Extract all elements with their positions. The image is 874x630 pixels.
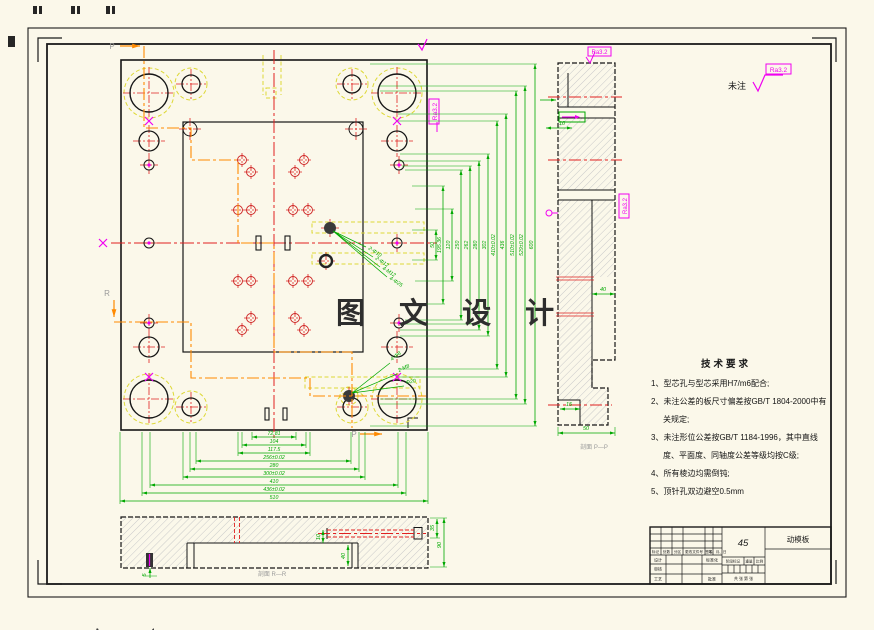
dim-label: 510 <box>270 495 279 501</box>
rev-header: 分区 <box>674 549 682 554</box>
section-letters: P P R <box>104 42 357 439</box>
dim-label: 436±0.02 <box>263 487 285 493</box>
dim-label: 72.81 <box>268 431 281 437</box>
drawing-sheet: A 4 <box>0 0 874 630</box>
roughness-symbol-icon <box>753 75 783 91</box>
dim-label: 436 <box>500 241 506 250</box>
dim-label: 104 <box>270 439 279 445</box>
dim-label: 302 <box>482 241 488 250</box>
hole-callouts-corner: 4-Φ8 2-M8 Φ20 <box>352 350 416 393</box>
title-block: 45 动模板 标记 处数 分区 更改文件号 签名 年、月、日 设计 标准化 审核… <box>650 527 831 584</box>
dim-label: 10 <box>559 121 566 127</box>
dim-label: 256±0.02 <box>262 455 285 461</box>
fold-letter-a: A <box>92 626 103 630</box>
dim-label: 15 <box>566 402 573 408</box>
ejector-pin-holes <box>234 156 313 335</box>
stage-label: 阶段标记 <box>726 559 741 564</box>
dim-label: 10 <box>316 533 322 540</box>
dim-label: 50 <box>430 242 436 248</box>
dim-label: 5 <box>142 573 148 577</box>
dim-label: 50 <box>583 426 590 432</box>
roughness-value: Ra3.2 <box>623 197 629 214</box>
rev-header: 年、月、日 <box>709 549 727 554</box>
weight-label: 重量 <box>745 559 753 564</box>
rev-header: 处数 <box>663 549 671 554</box>
watermark-text: 图 文 设 计 <box>336 290 567 332</box>
signature-labels: 设计 标准化 审核 工艺 批准 阶段标记 重量 比例 共 张 第 张 <box>654 557 763 582</box>
section-view-pp: Ra3.2 Ra3.2 10 40 15 50 剖面 P—P <box>540 47 629 451</box>
dim-labels-bottom: 72.81 104 117.5 256±0.02 280 300±0.02 41… <box>262 431 285 501</box>
tech-req-item: 5、顶针孔双边避空0.5mm <box>651 483 829 501</box>
section-pp-label: 剖面 P—P <box>580 443 608 451</box>
tech-req-item: 4、所有棱边均需倒钝; <box>651 465 829 483</box>
tech-req-item: 2、未注公差的板尺寸偏差按GB/T 1804-2000中有关规定; <box>651 393 829 429</box>
rev-header: 标记 <box>652 549 660 554</box>
dim-label: 410±0.02 <box>491 234 497 256</box>
hole-callout: 2-M8 <box>396 363 410 374</box>
tech-req-title: 技术要求 <box>651 356 829 374</box>
dim-label: 40 <box>341 552 347 559</box>
dim-label: 410 <box>270 479 279 485</box>
dim-label: 529±0.02 <box>519 234 525 256</box>
hole-callout: Φ20 <box>405 378 416 386</box>
section-letter-p-top: P <box>109 42 114 51</box>
main-view: Ra3.2 P P R <box>99 39 537 504</box>
standardization-label: 标准化 <box>706 557 718 563</box>
dim-label: 510±0.02 <box>510 234 516 256</box>
hole-callout: 4-Φ8 <box>390 350 403 362</box>
dim-label: 300±0.02 <box>263 471 285 477</box>
dim-label: 600 <box>529 241 535 250</box>
dim-label: 195.36 <box>437 237 443 253</box>
technical-requirements: 技术要求 1、型芯孔与型芯采用H7/m6配合; 2、未注公差的板尺寸偏差按GB/… <box>651 356 829 501</box>
dim-label: 40 <box>600 287 607 293</box>
section-letter-p-bottom: P <box>351 430 356 439</box>
rev-header: 更改文件号 <box>685 549 703 554</box>
fold-number-4: 4 <box>148 626 156 630</box>
dim-label: 280 <box>269 463 279 469</box>
revision-header-row: 标记 处数 分区 更改文件号 签名 年、月、日 <box>652 549 727 554</box>
roughness-value: Ra3.2 <box>432 102 439 120</box>
dim-label: 250 <box>455 241 461 251</box>
dim-label: 262 <box>464 241 470 251</box>
note-prefix: 未注 <box>728 80 746 91</box>
dim-label: 280 <box>473 241 479 251</box>
process-label: 工艺 <box>654 577 662 582</box>
approve-label: 批准 <box>708 576 716 582</box>
dim-label: 117.5 <box>268 447 281 453</box>
tech-req-item: 1、型芯孔与型芯采用H7/m6配合; <box>651 375 829 393</box>
general-roughness-note: 未注 Ra3.2 <box>728 64 791 91</box>
dim-label: 35 <box>430 524 436 531</box>
section-view-rr: 35 90 40 10 5 剖面 R—R <box>121 517 447 578</box>
pocket <box>187 543 358 568</box>
section-cut-lines <box>114 46 426 434</box>
part-name: 动模板 <box>787 534 810 544</box>
material-value: 45 <box>738 538 749 549</box>
design-label: 设计 <box>654 557 662 563</box>
dim-label: 120 <box>446 241 452 250</box>
scale-label: 比例 <box>756 559 764 564</box>
hole-callout: 4-Φ25 <box>388 276 404 289</box>
fold-marks: A 4 <box>92 626 156 630</box>
section-letter-r: R <box>104 289 110 298</box>
dim-label: 90 <box>437 541 443 548</box>
tech-req-item: 3、未注形位公差按GB/T 1184-1996，其中直线度、平面度、同轴度公差等… <box>651 429 829 465</box>
roughness-value: Ra3.2 <box>770 67 788 74</box>
centering-marks <box>8 6 115 47</box>
locating-pin <box>146 553 153 567</box>
sheets-label: 共 张 第 张 <box>734 575 753 581</box>
dim-labels-right: 50 195.36 120 250 262 280 302 410±0.02 4… <box>430 234 535 256</box>
check-label: 审核 <box>654 566 662 572</box>
plate-roughness-flag: Ra3.2 <box>429 99 439 124</box>
section-rr-label: 剖面 R—R <box>258 570 287 578</box>
